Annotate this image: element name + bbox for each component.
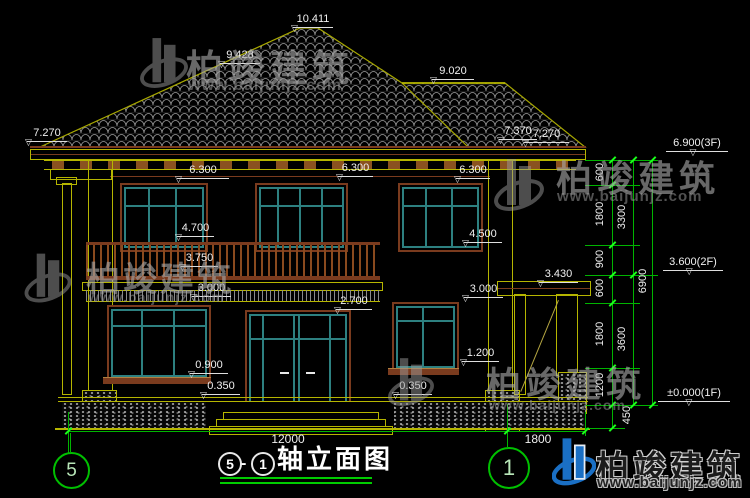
door-handle bbox=[306, 372, 315, 374]
window-frame bbox=[124, 187, 204, 248]
axis-number: 5 bbox=[66, 460, 77, 481]
cad-elevation-drawing: 10.411▽ 9.428▽ 9.020▽ 7.270▽ 7.370▽ 7.27… bbox=[0, 0, 750, 498]
watermark-logo-icon bbox=[140, 32, 188, 96]
window-transom bbox=[261, 205, 342, 207]
level-triangle-icon: ▽ bbox=[685, 398, 692, 407]
axis-bubble-5: 5 bbox=[53, 452, 90, 489]
level-triangle-icon: ▽ bbox=[430, 76, 437, 85]
level-value: 7.270 bbox=[33, 127, 61, 139]
level-marker: 7.270▽ bbox=[27, 127, 67, 142]
window-mullion bbox=[451, 189, 453, 246]
level-value: 6.300 bbox=[189, 164, 217, 176]
level-marker: 0.350▽ bbox=[202, 380, 240, 395]
level-value: 4.500 bbox=[469, 228, 497, 240]
title-underline-1 bbox=[220, 477, 372, 479]
level-value: ±0.000(1F) bbox=[667, 387, 721, 399]
level-triangle-icon: ▽ bbox=[686, 267, 693, 276]
level-value: 10.411 bbox=[297, 13, 330, 25]
axis-number: 1 bbox=[503, 455, 515, 480]
title-axis-start: 5 bbox=[226, 456, 234, 472]
title-axis-end-circle: 1 bbox=[251, 452, 275, 476]
level-marker: 6.300▽ bbox=[338, 162, 373, 177]
title-axis-start-circle: 5 bbox=[218, 452, 242, 476]
level-marker-floor2: 3.600(2F)▽ bbox=[663, 256, 723, 271]
watermark-logo-icon bbox=[24, 248, 72, 310]
level-marker: 4.500▽ bbox=[464, 228, 502, 243]
level-marker: 4.700▽ bbox=[177, 222, 214, 237]
level-triangle-icon: ▽ bbox=[334, 306, 341, 315]
level-value: 0.900 bbox=[195, 359, 223, 371]
level-value: 3.000 bbox=[470, 283, 498, 295]
level-triangle-icon: ▽ bbox=[454, 175, 461, 184]
level-marker: 6.300▽ bbox=[177, 164, 229, 179]
axis-bubble-1: 1 bbox=[488, 447, 530, 489]
dim-value: 600 bbox=[594, 268, 606, 308]
level-value: 0.350 bbox=[207, 380, 235, 392]
level-value: 6.300 bbox=[342, 162, 370, 174]
window-transom bbox=[126, 205, 202, 207]
level-marker: 3.000▽ bbox=[464, 283, 503, 298]
brand-url: www.baijunjz.com bbox=[597, 474, 742, 491]
level-marker-floor1: ±0.000(1F)▽ bbox=[658, 387, 730, 402]
level-value: 2.700 bbox=[340, 295, 368, 307]
wall-top-beam-line bbox=[110, 176, 490, 177]
door-handle bbox=[280, 372, 289, 374]
level-value: 7.270 bbox=[533, 128, 561, 140]
dim-subtotal: 3600 bbox=[616, 319, 628, 359]
level-triangle-icon: ▽ bbox=[537, 279, 544, 288]
level-value: 9.020 bbox=[439, 65, 467, 77]
watermark-logo-icon bbox=[494, 152, 544, 220]
level-value: 6.900(3F) bbox=[673, 137, 721, 149]
dim-total: 6900 bbox=[637, 261, 649, 301]
level-value: 3.600(2F) bbox=[669, 256, 717, 268]
level-value: 6.300 bbox=[459, 164, 487, 176]
level-value: 4.700 bbox=[182, 222, 210, 234]
window-frame bbox=[259, 187, 344, 248]
level-marker: 7.270▽ bbox=[524, 128, 569, 143]
level-triangle-icon: ▽ bbox=[462, 294, 469, 303]
window-mullion bbox=[141, 311, 143, 375]
level-marker: 10.411▽ bbox=[293, 13, 333, 28]
window-transom bbox=[404, 205, 477, 207]
level-triangle-icon: ▽ bbox=[522, 139, 529, 148]
level-triangle-icon: ▽ bbox=[188, 370, 195, 379]
level-triangle-icon: ▽ bbox=[291, 24, 298, 33]
level-marker: 9.020▽ bbox=[432, 65, 474, 80]
level-triangle-icon: ▽ bbox=[336, 173, 343, 182]
window-mullion bbox=[148, 189, 150, 246]
level-value: 3.430 bbox=[545, 268, 573, 280]
window-transom bbox=[398, 320, 453, 322]
level-triangle-icon: ▽ bbox=[25, 138, 32, 147]
level-triangle-icon: ▽ bbox=[175, 175, 182, 184]
title-underline-2 bbox=[220, 482, 372, 484]
porch-roof-inner-line bbox=[498, 288, 590, 289]
level-marker: 3.430▽ bbox=[539, 268, 578, 283]
watermark-logo-icon bbox=[388, 350, 434, 416]
dim-ext-line bbox=[585, 428, 625, 429]
level-triangle-icon: ▽ bbox=[460, 358, 467, 367]
window-mullion bbox=[321, 189, 323, 246]
watermark-url: www.baijunjz.com bbox=[557, 188, 702, 205]
title-axis-end: 1 bbox=[259, 456, 267, 472]
watermark-url: www.baijunjz.com bbox=[88, 289, 225, 305]
eave-fascia-line bbox=[30, 146, 586, 148]
level-triangle-icon: ▽ bbox=[497, 136, 504, 145]
brand-logo-icon bbox=[552, 432, 596, 494]
watermark-url: www.baijunjz.com bbox=[188, 77, 342, 95]
level-marker: 6.300▽ bbox=[456, 164, 490, 179]
watermark-url: www.baijunjz.com bbox=[489, 397, 626, 413]
level-triangle-icon: ▽ bbox=[200, 391, 207, 400]
axis-line-5 bbox=[70, 433, 71, 452]
level-marker: 0.900▽ bbox=[190, 359, 228, 374]
window-mullion bbox=[425, 189, 427, 246]
window-mullion bbox=[299, 189, 301, 246]
level-triangle-icon: ▽ bbox=[175, 233, 182, 242]
level-triangle-icon: ▽ bbox=[462, 239, 469, 248]
window-transom bbox=[113, 325, 205, 327]
dim-value: 1800 bbox=[594, 314, 606, 354]
level-marker: 2.700▽ bbox=[336, 295, 372, 310]
drawing-title: 轴立面图 bbox=[277, 444, 393, 474]
window-mullion bbox=[173, 311, 175, 375]
title-separator: - bbox=[241, 455, 246, 473]
window-mullion bbox=[277, 189, 279, 246]
